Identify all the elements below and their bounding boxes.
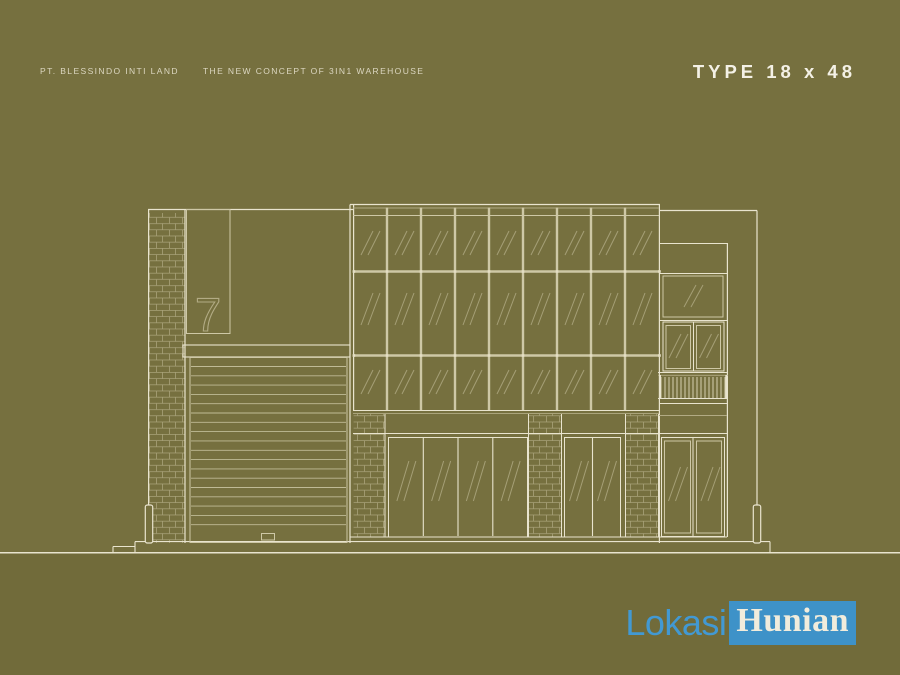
storefront-glazing (389, 437, 621, 537)
roller-door (183, 345, 350, 543)
brick-pillar-1 (354, 414, 385, 537)
brick-pillar-2 (529, 414, 562, 537)
watermark-logo: Lokasi Hunian (625, 601, 856, 645)
balcony-railing (658, 373, 728, 399)
tower-window (663, 276, 723, 317)
header: PT. BLESSINDO INTI LAND THE NEW CONCEPT … (40, 66, 424, 76)
watermark-lokasi: Lokasi (625, 602, 726, 644)
type-label: TYPE 18 x 48 (693, 61, 856, 83)
building-outline (0, 205, 900, 553)
unit-number-panel: 7 (187, 210, 231, 342)
left-bollard (145, 505, 152, 543)
roller-door-handle (262, 534, 275, 541)
unit-number: 7 (195, 288, 221, 341)
right-bollard (753, 505, 760, 543)
elevation-drawing: 7 (0, 0, 900, 675)
left-brick-column (149, 213, 185, 543)
tagline: THE NEW CONCEPT OF 3IN1 WAREHOUSE (203, 66, 424, 76)
watermark-hunian: Hunian (729, 601, 856, 645)
curtain-wall (353, 208, 661, 411)
company-name: PT. BLESSINDO INTI LAND (40, 66, 179, 76)
brick-pillar-3 (626, 414, 659, 537)
presentation-slide: 7 PT. BLESSINDO INTI LAND THE NEW CONCEP… (0, 0, 900, 675)
